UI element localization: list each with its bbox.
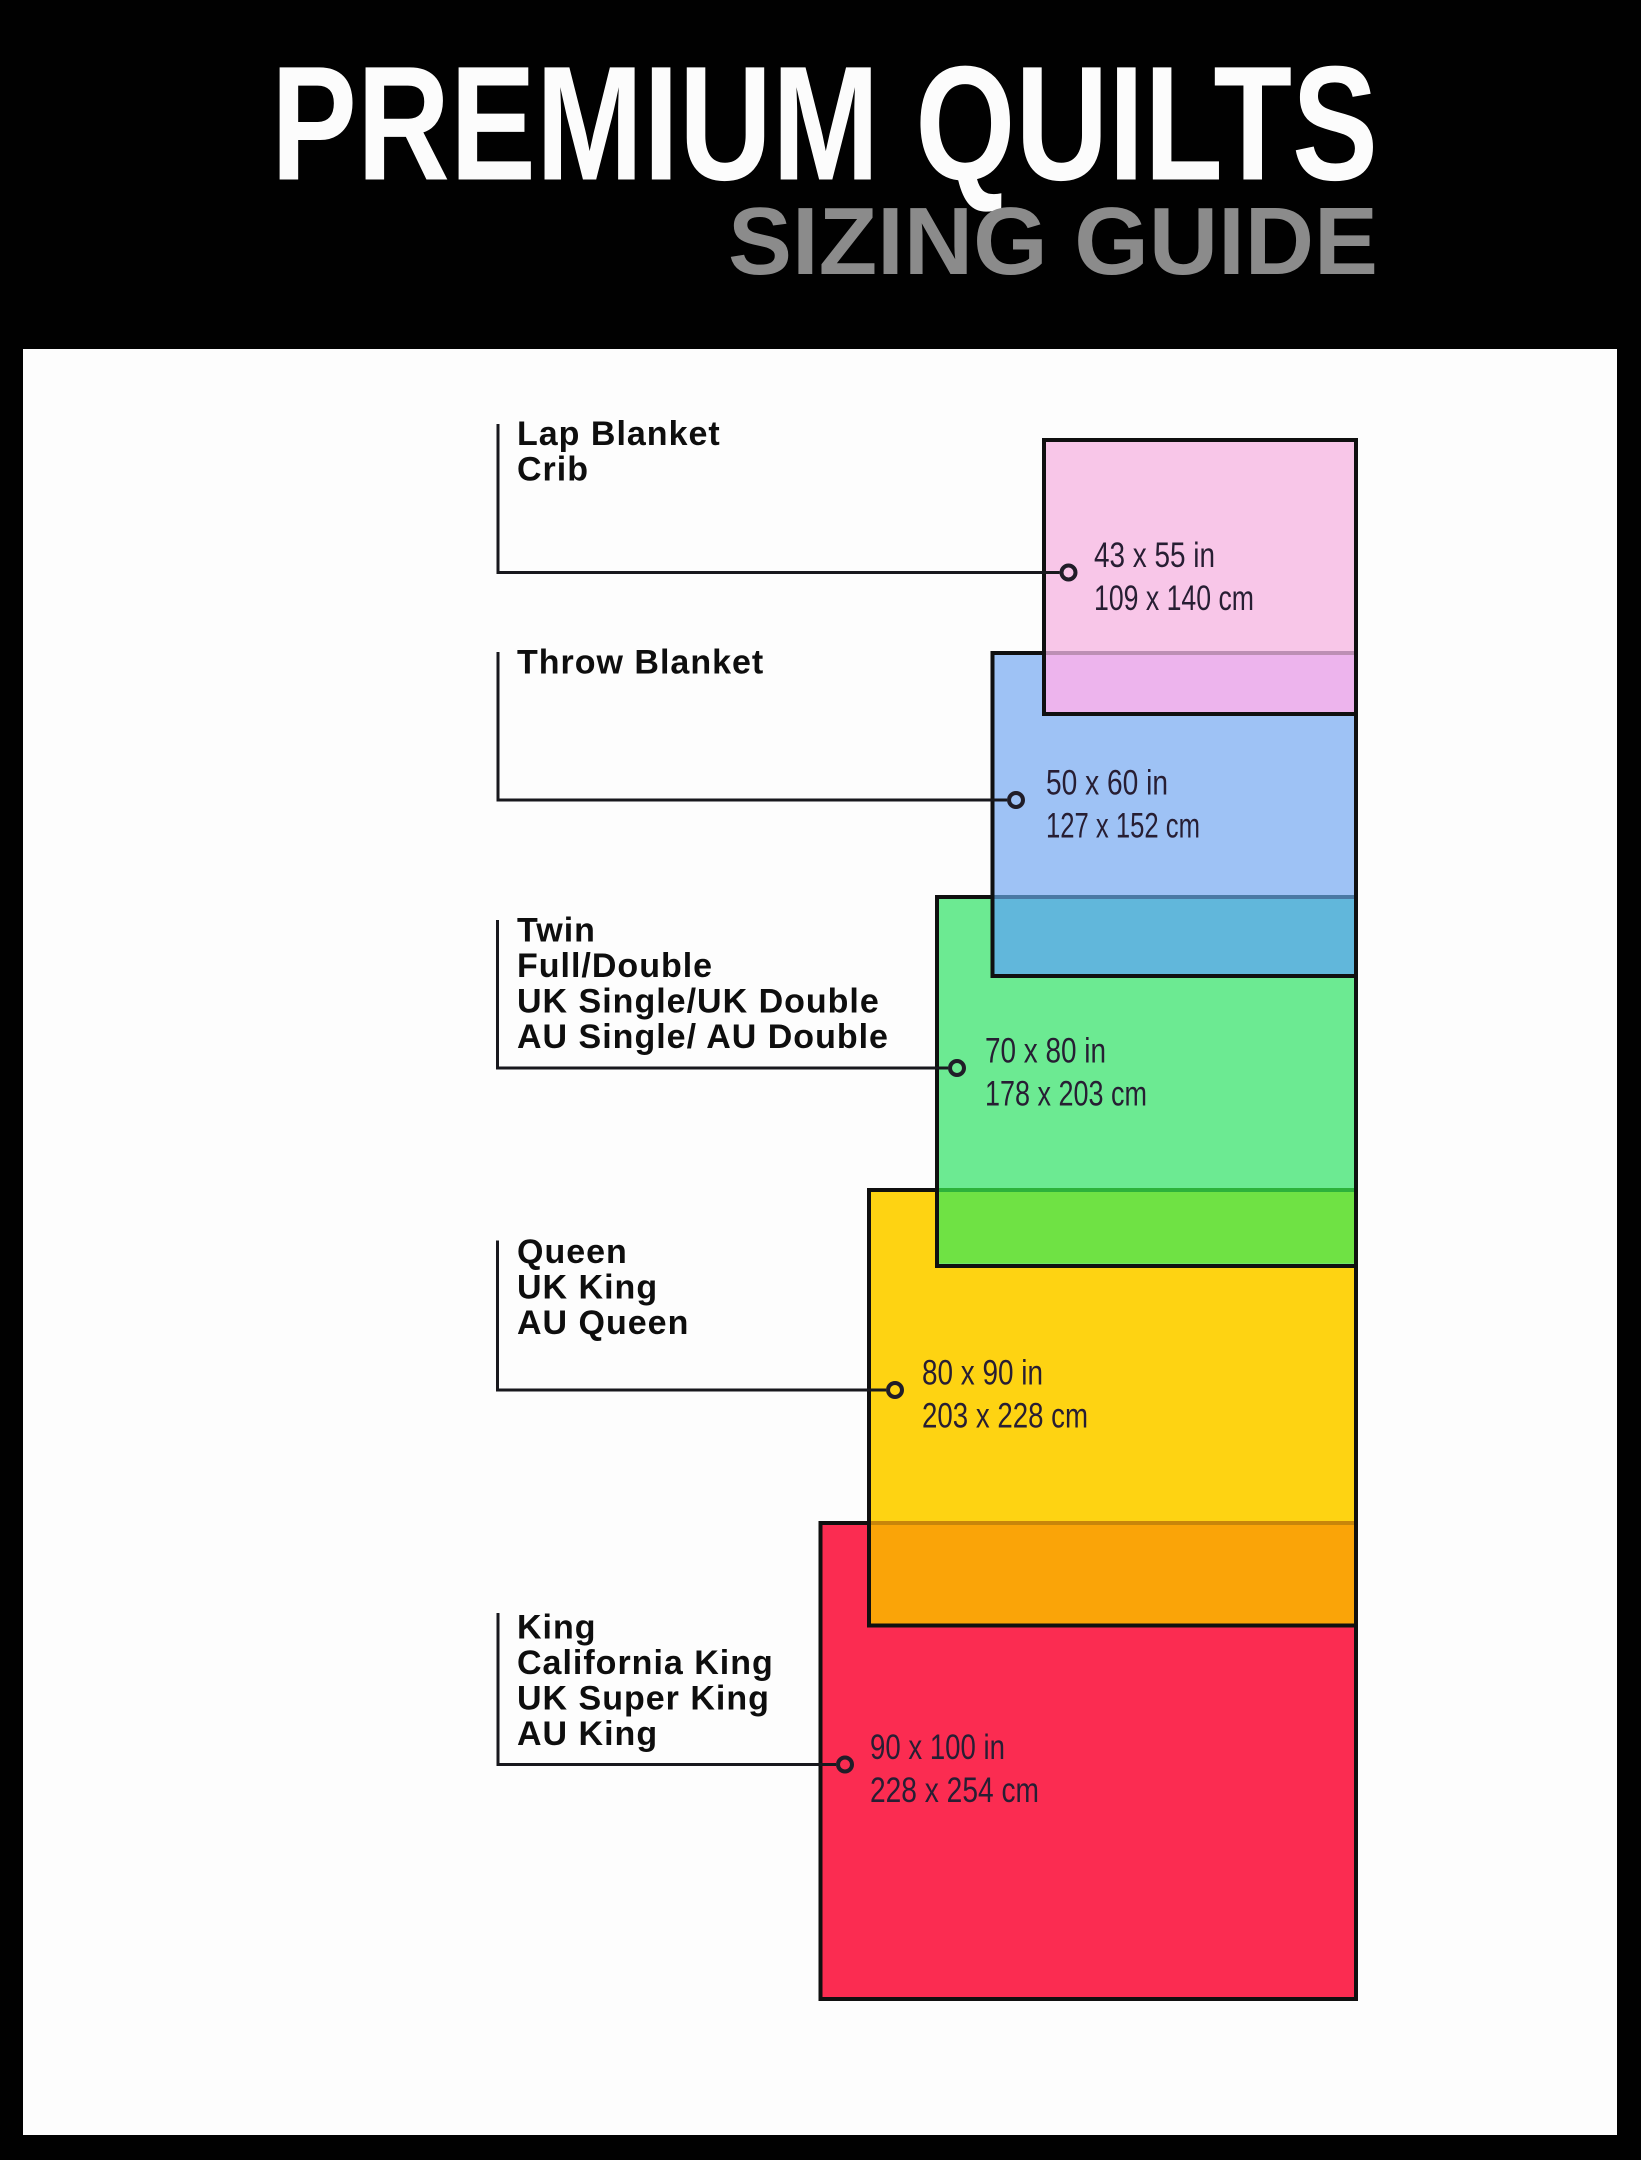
svg-text:109 x 140 cm: 109 x 140 cm bbox=[1094, 579, 1254, 618]
svg-text:178 x 203 cm: 178 x 203 cm bbox=[985, 1075, 1147, 1114]
svg-text:203 x 228 cm: 203 x 228 cm bbox=[922, 1397, 1088, 1436]
svg-text:80 x 90 in: 80 x 90 in bbox=[922, 1354, 1043, 1393]
svg-text:228 x 254 cm: 228 x 254 cm bbox=[870, 1771, 1039, 1810]
svg-text:Throw Blanket: Throw Blanket bbox=[517, 643, 764, 681]
svg-text:50 x 60 in: 50 x 60 in bbox=[1046, 764, 1168, 803]
svg-text:127 x 152 cm: 127 x 152 cm bbox=[1046, 807, 1200, 846]
svg-text:90 x 100 in: 90 x 100 in bbox=[870, 1728, 1005, 1767]
svg-text:70 x 80 in: 70 x 80 in bbox=[985, 1032, 1106, 1071]
svg-text:43 x 55 in: 43 x 55 in bbox=[1094, 536, 1215, 575]
svg-text:SIZING GUIDE: SIZING GUIDE bbox=[728, 188, 1378, 295]
